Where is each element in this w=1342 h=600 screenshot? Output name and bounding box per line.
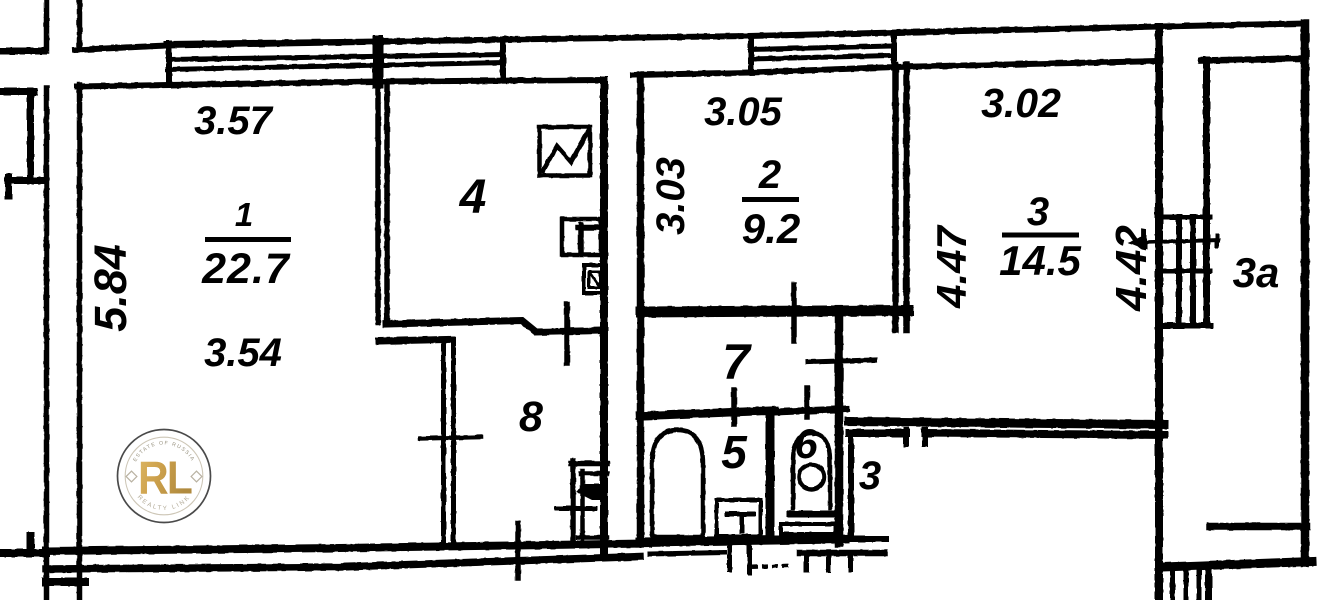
svg-text:4.47: 4.47 <box>928 224 975 308</box>
svg-text:3: 3 <box>1027 190 1049 234</box>
svg-text:1: 1 <box>235 196 253 233</box>
svg-text:8: 8 <box>519 393 543 441</box>
svg-text:3.02: 3.02 <box>981 80 1061 126</box>
svg-text:3.05: 3.05 <box>704 90 783 134</box>
svg-text:3.54: 3.54 <box>204 331 282 375</box>
svg-text:3.03: 3.03 <box>649 157 693 235</box>
svg-text:5: 5 <box>721 426 748 478</box>
svg-text:9.2: 9.2 <box>742 205 800 252</box>
svg-text:5.84: 5.84 <box>85 244 136 332</box>
svg-text:6: 6 <box>794 420 818 467</box>
svg-text:22.7: 22.7 <box>201 245 291 293</box>
svg-text:3а: 3а <box>1233 249 1280 296</box>
svg-text:7: 7 <box>722 334 752 390</box>
svg-text:14.5: 14.5 <box>999 237 1081 284</box>
svg-text:3.57: 3.57 <box>194 99 274 143</box>
svg-text:2: 2 <box>758 153 781 197</box>
svg-text:RL: RL <box>138 452 192 504</box>
svg-text:4.42: 4.42 <box>1107 225 1156 312</box>
svg-text:3: 3 <box>859 454 881 498</box>
svg-text:4: 4 <box>459 171 487 224</box>
